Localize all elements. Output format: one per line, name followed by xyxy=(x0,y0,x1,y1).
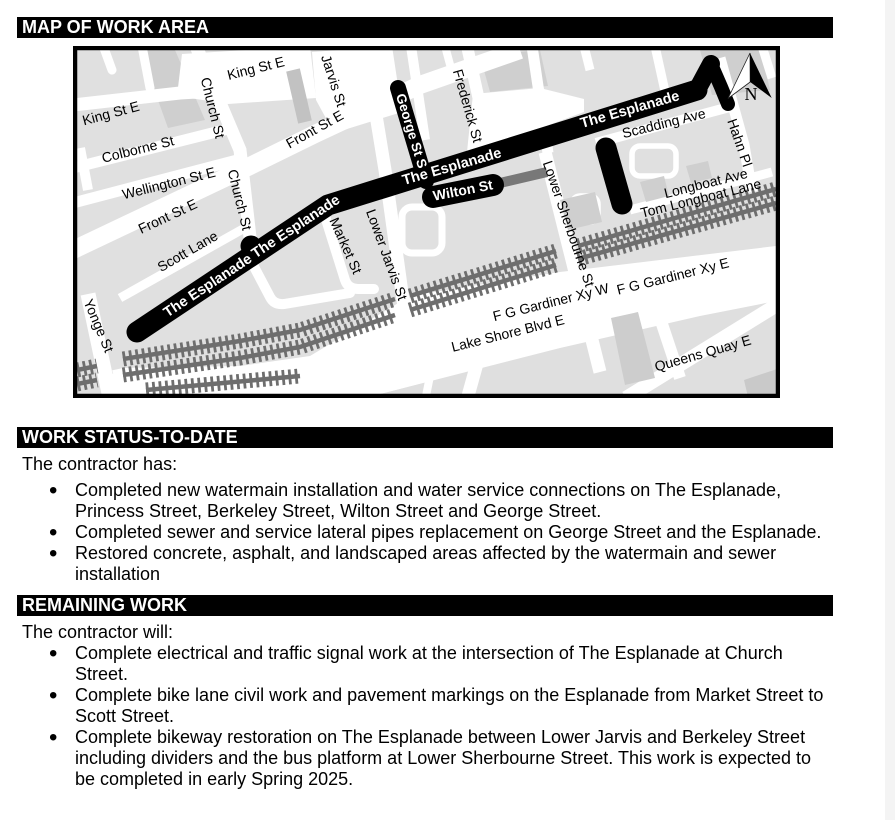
svg-text:N: N xyxy=(745,84,758,104)
